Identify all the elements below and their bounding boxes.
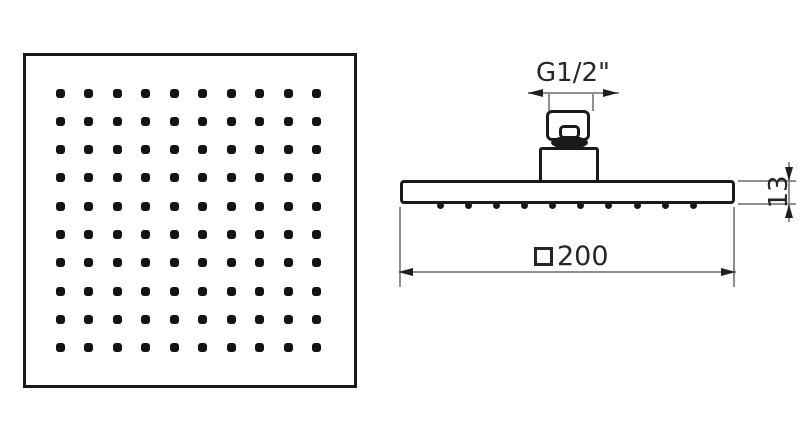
connector-base: [539, 147, 599, 183]
thread-dimension-label: G1/2": [513, 60, 633, 86]
arrow-left-icon: [528, 89, 543, 97]
thickness-dimension-label: 13: [766, 170, 794, 214]
thread-extension-line-left: [548, 92, 550, 111]
arrow-right-icon: [721, 268, 736, 276]
thread-extension-line-right: [592, 92, 594, 111]
arrow-right-icon: [603, 89, 618, 97]
square-section-symbol-icon: [534, 247, 553, 266]
connector-thread-opening: [559, 125, 580, 139]
arrow-left-icon: [398, 268, 413, 276]
side-view-plate: [400, 180, 735, 204]
width-dimension-label: 200: [534, 243, 609, 269]
front-view-plate: [23, 53, 357, 388]
shower-head-technical-drawing: G1/2" 13 200: [0, 0, 800, 442]
width-dimension-value: 200: [557, 243, 609, 270]
